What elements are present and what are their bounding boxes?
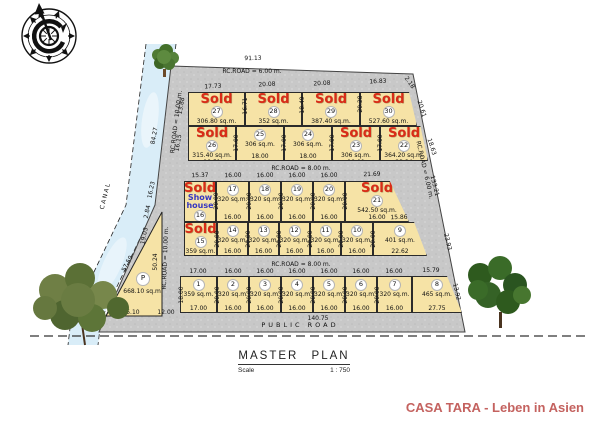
lot-area: 542.50 sq.m. (357, 207, 397, 214)
parking-lot-area: 668.10 sq.m. (112, 288, 174, 295)
lot-number: 27 (211, 106, 223, 118)
lot-area: 306 sq.m. (245, 141, 275, 148)
lot-area: 465 sq.m. (422, 291, 452, 298)
lot-bottom-dimension: 17.00 (181, 305, 216, 312)
lot-bottom-dimension: 16.00 (280, 248, 309, 255)
lot-area: 320 sq.m. (342, 237, 372, 244)
lot-area: 320 sq.m. (314, 196, 344, 203)
parking-lot-letter: P (136, 272, 150, 286)
lot-28: Sold28352 sq.m.16.004.00 (245, 92, 302, 126)
lot-number: 22 (398, 140, 410, 152)
lot-area: 359 sq.m. (186, 248, 216, 255)
lot-20: 20320 sq.m.16.00 (313, 181, 345, 222)
dimension-label: 25.10 (122, 310, 139, 316)
lot-number: 8 (431, 279, 443, 291)
tree-top-icon (152, 44, 179, 77)
dimension-label: 18.49 (300, 96, 306, 113)
lot-bottom-dimension: 18.00 (333, 159, 379, 161)
lot-number: 10 (351, 225, 363, 237)
dimension-label: 20.00 (247, 192, 253, 209)
lot-area: 401 sq.m. (385, 237, 415, 244)
lot-area: 527.60 sq.m. (369, 118, 409, 125)
dimension-label: 16.00 (288, 269, 305, 275)
tree-right-icon (468, 256, 531, 328)
lot-number: 7 (389, 279, 401, 291)
lot-number: 29 (325, 106, 337, 118)
dimension-label: 17.00 (330, 134, 336, 151)
lot-bottom-dimension: 16.00 (311, 248, 340, 255)
lot-5: 5320 sq.m.16.00 (313, 276, 345, 313)
dimension-label: 16.00 (288, 173, 305, 180)
dimension-label: 23.93 (442, 233, 452, 251)
title-block: MASTER PLAN Scale 1 : 750 (238, 350, 350, 374)
master-plan-canvas: Sold27306.80 sq.m.18.002.00Sold28352 sq.… (0, 0, 600, 424)
sold-label: Sold (315, 94, 347, 105)
dimension-label: 19.03 (140, 227, 149, 245)
lot-area: 315.40 sq.m. (192, 152, 232, 159)
dimension-label: 20.00 (311, 192, 317, 209)
dimension-label: 20.00 (339, 230, 345, 247)
lot-27: Sold27306.80 sq.m.18.002.00 (188, 92, 245, 126)
dimension-label: 20.00 (215, 230, 221, 247)
dimension-label: 20.00 (311, 286, 317, 303)
lot-number: 5 (323, 279, 335, 291)
branding-text: CASA TARA - Leben in Asien (406, 400, 584, 415)
sold-label: Sold (257, 94, 289, 105)
lot-number: 13 (258, 225, 270, 237)
lot-13: 13320 sq.m.16.00 (248, 222, 279, 256)
lot-area: 320 sq.m. (250, 291, 280, 298)
lot-19: 19320 sq.m.16.00 (281, 181, 313, 222)
lot-number: 15 (195, 236, 207, 248)
lot-bottom-dimension: 16.00 (217, 214, 248, 221)
lot-area: 387.40 sq.m. (311, 118, 351, 125)
lot-area: 306 sq.m. (293, 141, 323, 148)
dimension-label: 20.00 (343, 286, 349, 303)
lot-area: 320 sq.m. (380, 291, 410, 298)
lot-9: 9401 sq.m.22.62 (373, 222, 427, 256)
lot-bottom-dimension: 17.00 (185, 255, 216, 256)
lot-number: 21 (371, 195, 383, 207)
compass-rose-icon (22, 3, 76, 63)
dimension-label: 16.23 (147, 181, 156, 199)
lot-2: 2320 sq.m.16.00 (217, 276, 249, 313)
sold-label: Sold (184, 224, 216, 235)
lot-bottom-dimension: 18.51 (189, 159, 235, 161)
dimension-label: 84.27 (150, 127, 159, 145)
lot-area: 320 sq.m. (249, 237, 279, 244)
lot-bottom-dimension: 16.00 (250, 305, 280, 312)
scale-value: 1 : 750 (330, 367, 350, 374)
dimension-label: 20.08 (258, 82, 275, 89)
lot-number: 14 (227, 225, 239, 237)
dimension-label: 20.00 (343, 192, 349, 209)
lot-bottom-dimension: 16.00 (249, 248, 278, 255)
dimension-label: 16.00 (224, 269, 241, 275)
dimension-label: 20.00 (215, 286, 221, 303)
lot-area: 320 sq.m. (218, 291, 248, 298)
lot-10: 10320 sq.m.16.00 (341, 222, 373, 256)
dimension-label: 20.00 (375, 286, 381, 303)
lot-18: 18320 sq.m.16.00 (249, 181, 281, 222)
lot-14: 14320 sq.m.16.00 (217, 222, 248, 256)
lot-number: 19 (291, 184, 303, 196)
dimension-label: 16.00 (256, 173, 273, 180)
lot-bottom-dimension: 16.00 (346, 305, 376, 312)
lot-area: 320 sq.m. (311, 237, 341, 244)
lot-number: 9 (394, 225, 406, 237)
dimension-label: 57.50 (121, 255, 134, 273)
dimension-label: 20.00 (247, 286, 253, 303)
sold-label: Sold (388, 128, 420, 139)
lot-29: Sold29387.40 sq.m.14.006.00 (302, 92, 360, 126)
lot-30: Sold30527.60 sq.m.12.0017.72 (360, 92, 417, 126)
dimension-label: 20.61 (415, 100, 426, 118)
dimension-label: 16.71 (243, 97, 249, 114)
lot-7: 7320 sq.m.16.00 (377, 276, 412, 313)
dimension-label: 20.00 (371, 230, 377, 247)
lot-bottom-dimension: 16.00 (314, 214, 344, 221)
lot-bottom-dimension: 22.62 (374, 248, 426, 255)
lot-area: 320 sq.m. (218, 237, 248, 244)
sold-label: Sold (196, 128, 228, 139)
dimension-label: 15.79 (422, 268, 439, 274)
lot-bottom-dimension: 16.00 (250, 214, 280, 221)
dimension-label: 17.00 (189, 269, 206, 275)
lot-3: 3320 sq.m.16.00 (249, 276, 281, 313)
lot-bottom-dimension: 18.00 (237, 153, 283, 160)
sold-label: Sold (340, 128, 372, 139)
lot-area: 306 sq.m. (341, 152, 371, 159)
tree-left-icon (33, 263, 129, 345)
lot-17: 17320 sq.m.16.00 (216, 181, 249, 222)
dimension-label: 21.69 (363, 172, 380, 179)
lot-area: 320 sq.m. (314, 291, 344, 298)
lot-area: 320 sq.m. (218, 196, 248, 203)
dimension-label: 18.00 (179, 286, 185, 303)
dimension-label: 17.00 (378, 134, 384, 151)
sold-label: Sold (361, 183, 393, 194)
road-label-top: RC.ROAD = 6.00 m. (207, 69, 297, 75)
canal-waterway (68, 44, 176, 345)
lot-12: 12320 sq.m.16.00 (279, 222, 310, 256)
lot-number: 6 (355, 279, 367, 291)
dimension-label: 16.00 (352, 269, 369, 275)
dimension-label: 16.83 (369, 79, 386, 86)
lot-number: 26 (206, 140, 218, 152)
lot-area: 352 sq.m. (259, 118, 289, 125)
lot-number: 12 (289, 225, 301, 237)
show-house-label: Show house (186, 194, 213, 209)
sold-label: Sold (200, 94, 232, 105)
road-label-mid-upper: RC.ROAD = 8.00 m. (256, 166, 346, 172)
lot-number: 30 (383, 106, 395, 118)
lot-bottom-dimension: 18.00 (285, 153, 331, 160)
lot-23: Sold23306 sq.m.18.00 (332, 126, 380, 161)
dimension-label: 18.63 (425, 138, 436, 156)
road-label-mid-lower: RC.ROAD = 8.00 m. (256, 262, 346, 268)
lot-bottom-dimension: 16.00 (282, 214, 312, 221)
lot-11: 11320 sq.m.16.00 (310, 222, 341, 256)
dimension-label: 20.00 (277, 230, 283, 247)
lot-number: 11 (320, 225, 332, 237)
lot-area: 320 sq.m. (282, 196, 312, 203)
dimension-label: 17.00 (282, 134, 288, 151)
dimension-label: 20.08 (313, 81, 330, 88)
lot-6: 6320 sq.m.16.00 (345, 276, 377, 313)
lot-number: 25 (254, 129, 266, 141)
lot-bottom-dimension: 16.00 (218, 305, 248, 312)
lot-number: 2 (227, 279, 239, 291)
dimension-label: 12.00 (157, 310, 174, 316)
scale-label: Scale (238, 367, 254, 374)
lot-area: 320 sq.m. (250, 196, 280, 203)
lot-number: 24 (302, 129, 314, 141)
dimension-label: 17.73 (204, 84, 221, 91)
lot-number: 20 (323, 184, 335, 196)
lot-number: 1 (193, 279, 205, 291)
dimension-label: 16.00 (256, 269, 273, 275)
dimension-label: 20.00 (279, 286, 285, 303)
lot-15: Sold15359 sq.m.17.00 (184, 222, 217, 256)
dimension-label: 91.13 (244, 56, 261, 62)
dimension-label: 20.00 (279, 192, 285, 209)
lot-4: 4320 sq.m.16.00 (281, 276, 313, 313)
lot-25: 25306 sq.m.18.00 (236, 126, 284, 161)
lot-number: 18 (259, 184, 271, 196)
lot-number: 23 (350, 140, 362, 152)
lot-number: 28 (268, 106, 280, 118)
dimension-label: 16.00 (385, 269, 402, 275)
lot-bottom-dimension: 16.00 (378, 305, 411, 312)
lot-area: 320 sq.m. (346, 291, 376, 298)
lot-1: 1359 sq.m.17.00 (180, 276, 217, 313)
lot-bottom-dimension: 16.00 (282, 305, 312, 312)
lot-area: 320 sq.m. (280, 237, 310, 244)
dimension-label: 15.37 (191, 173, 208, 180)
lot-number: 3 (259, 279, 271, 291)
dimension-label: 20.28 (358, 95, 364, 112)
lot-bottom-dimension: 16.00 (342, 248, 372, 255)
lot-bottom-dimension: 16.00 (314, 305, 344, 312)
lot-bottom-dimension: 27.75 (413, 305, 461, 312)
dimension-label: 15.86 (390, 215, 407, 222)
dimension-label: 20.00 (246, 230, 252, 247)
road-label-left-lower: RC.ROAD = 10.00 m. (162, 226, 170, 289)
lot-number: 4 (291, 279, 303, 291)
dimension-label: 20.00 (214, 192, 220, 209)
dimension-label: 20.00 (308, 230, 314, 247)
dimension-label: 16.00 (320, 173, 337, 180)
lot-26: Sold26315.40 sq.m.18.51 (188, 126, 236, 161)
public-road-label: PUBLIC ROAD (250, 322, 350, 328)
dimension-label: 50.24 (153, 253, 159, 270)
lot-number: 16 (194, 210, 206, 222)
dimension-label: 16.00 (320, 269, 337, 275)
dimension-label: 2.84 (144, 205, 153, 219)
dimension-label: 17.00 (234, 134, 240, 151)
canal-label: CANAL (100, 182, 113, 210)
lot-bottom-dimension: 16.00 (218, 248, 247, 255)
lot-number: 17 (227, 184, 239, 196)
dimension-label: 2.18 (403, 76, 416, 90)
lot-area: 320 sq.m. (282, 291, 312, 298)
lot-area: 359 sq.m. (184, 291, 214, 298)
sold-label: Sold (372, 94, 404, 105)
lot-area: 306.80 sq.m. (197, 118, 237, 125)
lot-24: 24306 sq.m.18.00 (284, 126, 332, 161)
plan-title: MASTER PLAN (238, 350, 350, 365)
lot-16: SoldShow house1618.00 (184, 181, 216, 222)
dimension-label: 16.00 (224, 173, 241, 180)
